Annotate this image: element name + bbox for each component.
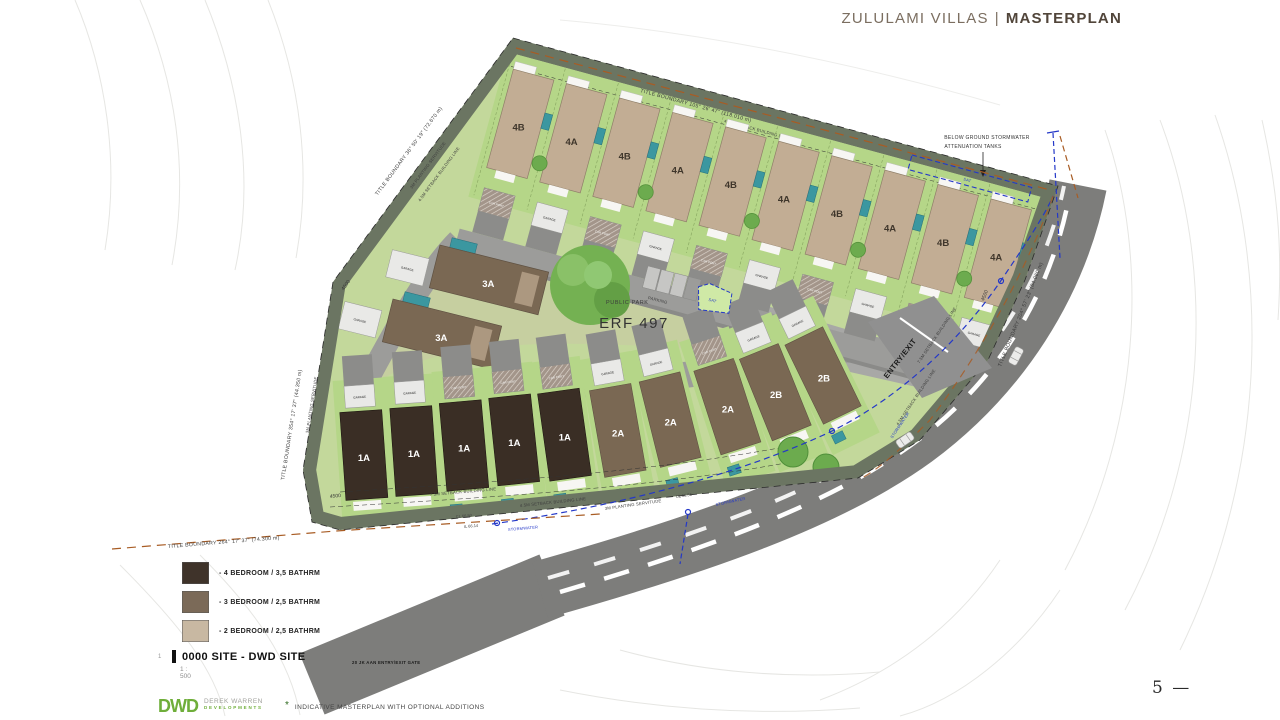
unit-label: 1A: [508, 438, 520, 449]
unit-label: 1A: [358, 453, 370, 464]
page-title: MASTERPLAN: [1006, 10, 1122, 27]
legend-item-2bed: - 2 BEDROOM / 2,5 BATHRM: [182, 620, 320, 642]
masterplan-slide: 20 JK AAN ENTRY/EXIT GATE 4.5M SETBACK B…: [0, 0, 1280, 720]
unit-label: 4B: [512, 122, 524, 133]
unit-label: 2B: [770, 390, 782, 401]
boundary-bottom-label: TITLE BOUNDARY 264° 17' 37" (74.300 m): [168, 535, 280, 550]
legend-label: - 3 BEDROOM / 2,5 BATHRM: [219, 599, 320, 606]
logo-name: DEREK WARREN: [204, 698, 263, 705]
unit-label: 4B: [831, 209, 843, 220]
dwd-logo: DWD: [158, 698, 198, 714]
legend-item-4bed: - 4 BEDROOM / 3,5 BATHRM: [182, 562, 320, 584]
unit-label: 1A: [458, 443, 470, 454]
unit-label: 4B: [619, 151, 631, 162]
legend: - 4 BEDROOM / 3,5 BATHRM - 3 BEDROOM / 2…: [182, 562, 320, 649]
unit-label: 4A: [566, 137, 578, 148]
sheet-ref-bar: [172, 650, 176, 663]
unit-label: 1A: [559, 433, 571, 444]
sheet-index: 1: [158, 654, 161, 660]
public-park-label: PUBLIC PARK: [606, 300, 649, 306]
svg-text:BELOW GROUND STORMWATER: BELOW GROUND STORMWATER: [944, 135, 1030, 141]
erf-label: ERF 497: [599, 315, 669, 332]
legend-swatch-4bed: [182, 562, 209, 584]
park-tree: [550, 245, 630, 325]
legend-swatch-3bed: [182, 591, 209, 613]
unit-label: 4A: [884, 223, 896, 234]
page-number: 5 —: [1152, 678, 1191, 698]
unit-label: 4A: [778, 195, 790, 206]
level-label: CL 66.50: [456, 513, 473, 519]
gate-label: 20 JK AAN ENTRY/EXIT GATE: [352, 660, 420, 665]
unit-label: 2B: [818, 373, 830, 384]
legend-label: - 4 BEDROOM / 3,5 BATHRM: [219, 570, 320, 577]
dimension-4500: 4500: [330, 493, 342, 500]
footer-logo: DWD DEREK WARREN DEVELOPMENTS: [158, 698, 263, 714]
logo-subtitle: DEVELOPMENTS: [204, 705, 263, 710]
title-divider: |: [995, 10, 1000, 27]
site-interior: 4.5M SETBACK BUILDING LINE 4B CAR PORT: [303, 36, 1067, 533]
asterisk-icon: *: [285, 702, 289, 710]
unit-label: 4B: [937, 238, 949, 249]
page-number-rule: —: [1172, 678, 1191, 698]
slide-title: ZULULAMI VILLAS|MASTERPLAN: [842, 10, 1123, 27]
stormwater-label: STORMWATER: [508, 524, 539, 532]
unit-label: 1A: [408, 449, 420, 460]
level-label: IL 66.14: [464, 523, 479, 529]
unit-label: 3A: [435, 333, 447, 344]
page-number-value: 5: [1152, 678, 1165, 698]
sheet-ref-title: 0000 SITE - DWD SITE: [182, 651, 306, 663]
unit-label: 2A: [722, 404, 734, 415]
unit-label: 2A: [612, 428, 624, 439]
legend-item-3bed: - 3 BEDROOM / 2,5 BATHRM: [182, 591, 320, 613]
svg-text:ATTENUATION TANKS: ATTENUATION TANKS: [944, 144, 1002, 150]
sheet-scale: 1 : 500: [180, 666, 191, 680]
project-name: ZULULAMI VILLAS: [842, 10, 989, 27]
footnote-text: INDICATIVE MASTERPLAN WITH OPTIONAL ADDI…: [295, 704, 485, 711]
unit-label: 4A: [672, 166, 684, 177]
legend-label: - 2 BEDROOM / 2,5 BATHRM: [219, 628, 320, 635]
level-label: CL 65.56: [675, 492, 692, 499]
unit-label: 2A: [665, 418, 677, 429]
unit-label: 4B: [725, 180, 737, 191]
unit-label: 3A: [482, 279, 494, 290]
footnote: * INDICATIVE MASTERPLAN WITH OPTIONAL AD…: [285, 702, 484, 711]
boundary-left-lower-label: TITLE BOUNDARY 354° 17' 37" (44.350 m): [280, 369, 303, 481]
legend-swatch-2bed: [182, 620, 209, 642]
unit-label: 4A: [990, 252, 1002, 263]
